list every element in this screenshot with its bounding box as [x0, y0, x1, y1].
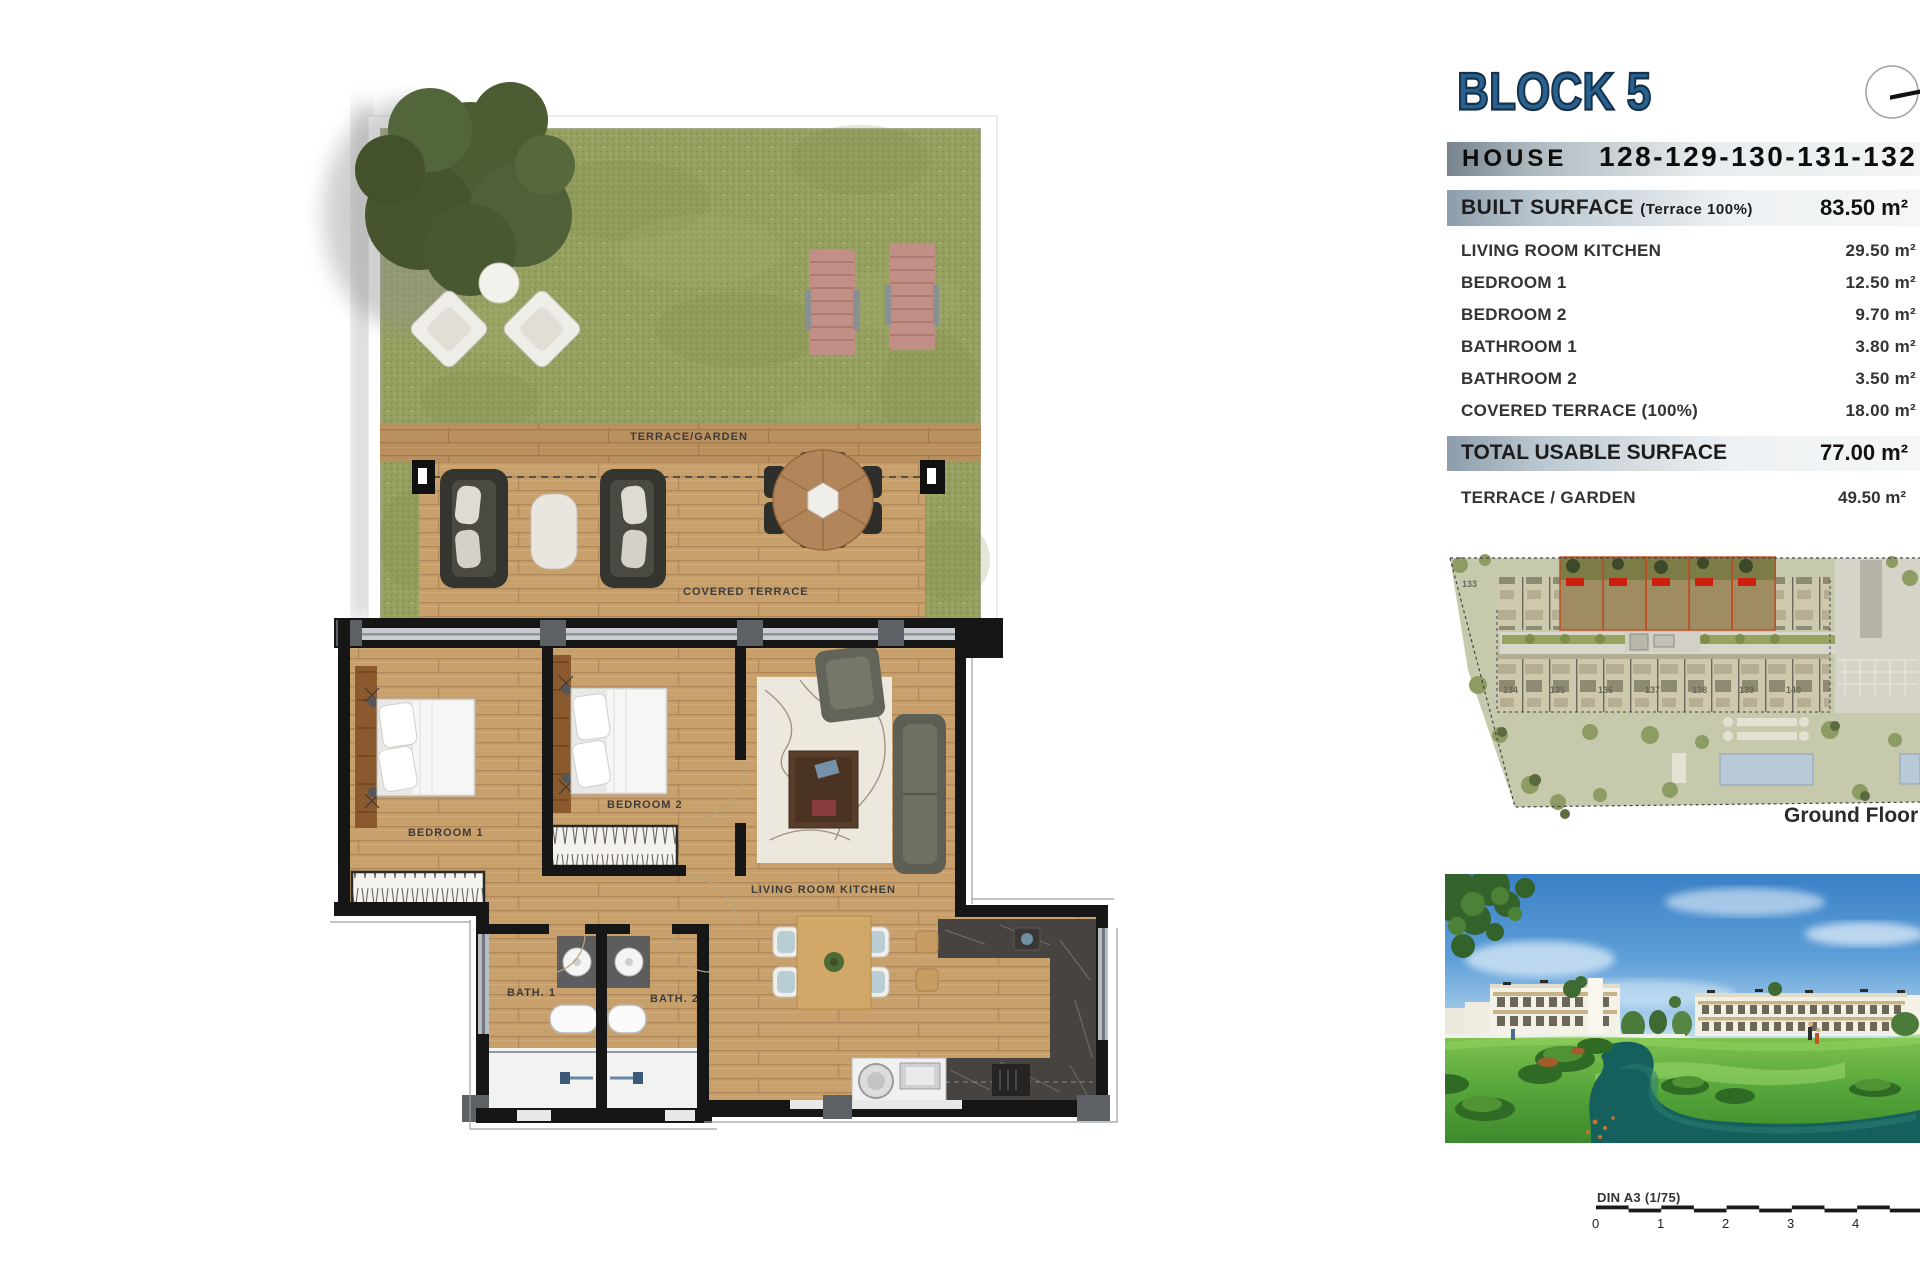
svg-text:139: 139 [1739, 685, 1754, 695]
svg-text:135: 135 [1550, 685, 1565, 695]
svg-text:134: 134 [1503, 685, 1518, 695]
svg-text:136: 136 [1598, 685, 1613, 695]
svg-text:140: 140 [1786, 685, 1801, 695]
svg-text:138: 138 [1692, 685, 1707, 695]
svg-text:133: 133 [1462, 579, 1477, 589]
svg-text:137: 137 [1645, 685, 1660, 695]
